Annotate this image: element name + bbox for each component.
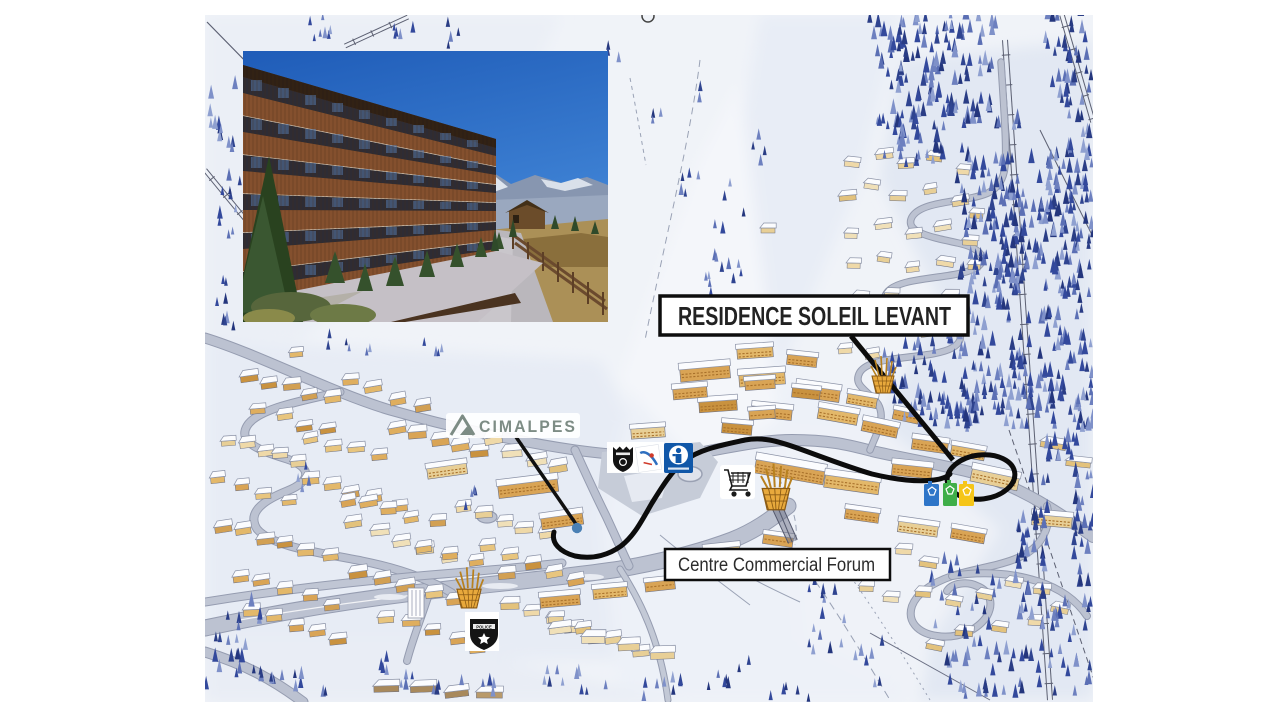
svg-text:Centre Commercial Forum: Centre Commercial Forum	[678, 555, 875, 576]
svg-text:POLICE: POLICE	[476, 625, 492, 630]
svg-text:RESIDENCE SOLEIL LEVANT: RESIDENCE SOLEIL LEVANT	[678, 301, 951, 331]
svg-text:CIMALPES: CIMALPES	[479, 417, 577, 436]
